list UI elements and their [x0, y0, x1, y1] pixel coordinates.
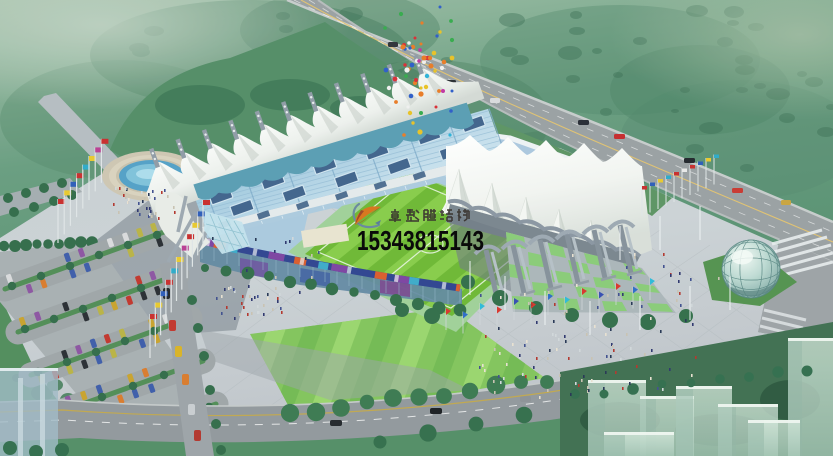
svg-text:15343815143: 15343815143: [357, 225, 484, 256]
